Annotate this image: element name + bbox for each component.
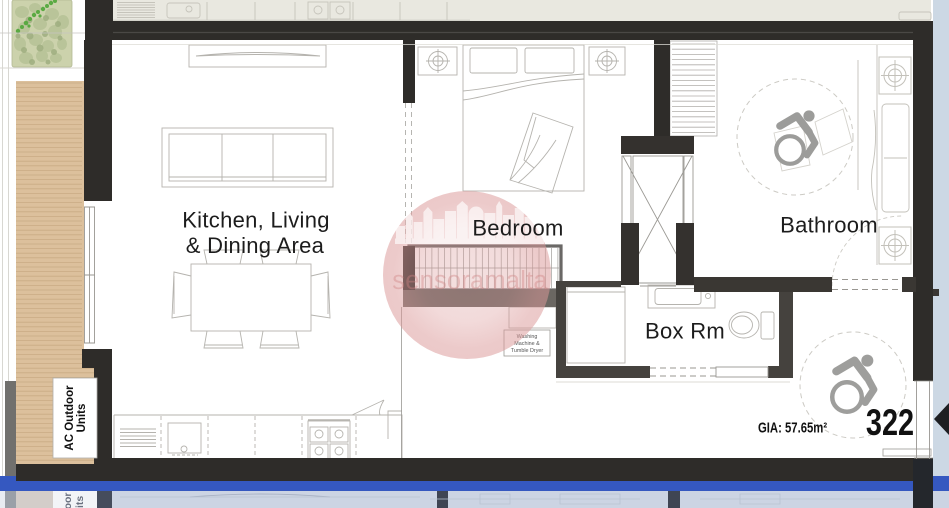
svg-text:GIA: 57.65m²: GIA: 57.65m² (758, 419, 828, 436)
svg-text:AC Outdoor: AC Outdoor (64, 385, 76, 451)
svg-text:sensoramalta: sensoramalta (392, 267, 548, 295)
svg-text:AC Outdoor: AC Outdoor (62, 493, 74, 508)
svg-text:322: 322 (866, 403, 914, 444)
svg-text:Units: Units (76, 404, 88, 433)
svg-text:Kitchen, Living: Kitchen, Living (182, 208, 330, 233)
svg-text:Units: Units (74, 496, 86, 508)
svg-text:Bathroom: Bathroom (780, 213, 878, 238)
svg-text:Tumble Dryer: Tumble Dryer (511, 348, 544, 354)
svg-text:Bedroom: Bedroom (472, 216, 563, 241)
svg-text:Box Rm: Box Rm (645, 319, 725, 344)
svg-text:& Dining Area: & Dining Area (186, 233, 325, 258)
svg-text:Machine &: Machine & (514, 341, 540, 347)
